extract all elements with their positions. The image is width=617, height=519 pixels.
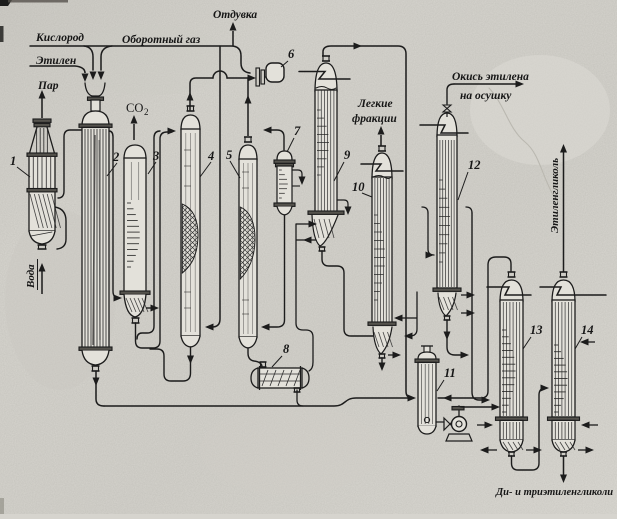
svg-text:Пар: Пар — [37, 80, 59, 92]
svg-text:Оборотный газ: Оборотный газ — [122, 33, 201, 46]
svg-text:4: 4 — [207, 149, 214, 163]
svg-text:Легкие: Легкие — [357, 98, 393, 110]
svg-text:Этиленгликоль: Этиленгликоль — [549, 158, 561, 233]
svg-text:11: 11 — [444, 366, 456, 380]
svg-text:фракции: фракции — [352, 113, 397, 125]
svg-text:8: 8 — [283, 342, 290, 356]
svg-text:14: 14 — [581, 323, 594, 337]
svg-text:Отдувка: Отдувка — [213, 9, 257, 21]
svg-text:5: 5 — [226, 148, 232, 162]
svg-text:2: 2 — [144, 107, 149, 117]
svg-text:СО: СО — [126, 101, 143, 115]
svg-text:2: 2 — [112, 150, 119, 164]
svg-text:13: 13 — [530, 323, 543, 337]
svg-text:3: 3 — [152, 149, 159, 163]
svg-text:12: 12 — [468, 158, 481, 172]
svg-text:Окись этилена: Окись этилена — [452, 71, 529, 83]
svg-text:Ди- и триэтиленгликоли: Ди- и триэтиленгликоли — [495, 487, 613, 498]
svg-text:на осушку: на осушку — [460, 90, 512, 102]
svg-text:7: 7 — [294, 124, 301, 138]
svg-text:Вода: Вода — [25, 264, 37, 289]
svg-text:Этилен: Этилен — [36, 55, 77, 67]
svg-text:Кислород: Кислород — [35, 32, 84, 44]
svg-text:9: 9 — [344, 148, 351, 162]
svg-text:6: 6 — [288, 47, 295, 61]
svg-text:10: 10 — [352, 180, 365, 194]
svg-text:1: 1 — [10, 154, 16, 168]
